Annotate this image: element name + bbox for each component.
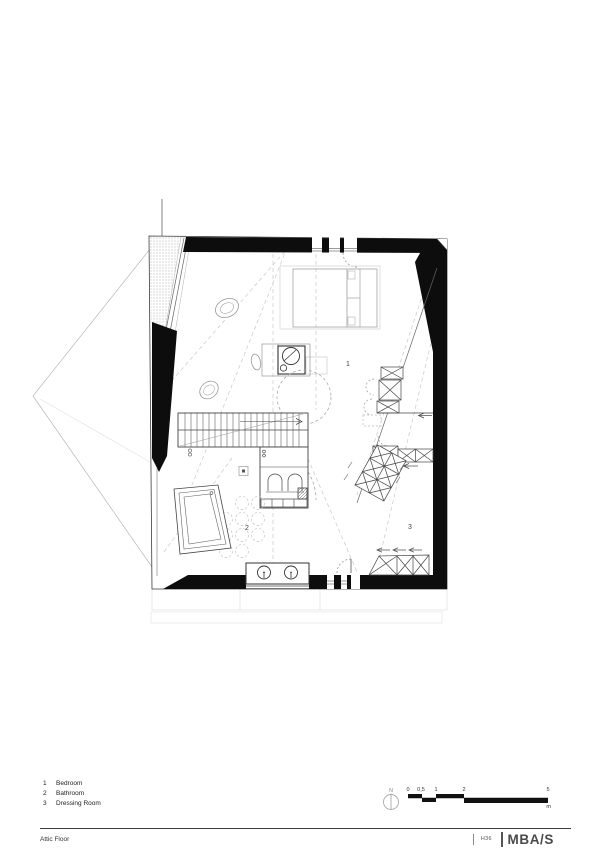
room-label-dressing: 3 [408,524,412,531]
scale-tick-1: 1 [434,787,437,793]
title-block-rule [40,828,571,829]
legend-num: 2 [43,789,56,799]
north-arrow: N [384,788,399,810]
room-label-bathroom: 2 [245,525,249,532]
scale-tick-0: 0 [406,787,409,793]
floor-plan-drawing: 1 2 3 N 0 0,5 1 2 5 m [0,0,611,864]
drawing-title: Attic Floor [40,836,69,843]
lower-floor-projection [151,589,447,623]
wc-bench-unit [260,447,308,508]
room-label-bedroom: 1 [346,361,350,368]
scale-tick-2: 2 [462,787,465,793]
legend-num: 3 [43,799,56,809]
room-legend: 1 Bedroom 2 Bathroom 3 Dressing Room [43,779,101,809]
terrace-door-opening [351,575,360,589]
divider-bar [473,834,474,845]
project-code: H36 [481,836,492,842]
vanity [246,563,309,589]
legend-label: Bedroom [56,779,82,789]
legend-item: 2 Bathroom [43,789,101,799]
scale-tick-5: 5 [546,787,549,793]
brand-block: H36 MBA/S [473,831,554,847]
divider-bar [501,832,503,847]
legend-label: Dressing Room [56,799,101,809]
legend-num: 1 [43,779,56,789]
scale-tick-05: 0,5 [417,787,425,793]
roof-gable-projection [33,249,152,567]
legend-item: 3 Dressing Room [43,799,101,809]
legend-item: 1 Bedroom [43,779,101,789]
scale-unit: m [546,804,551,810]
legend-label: Bathroom [56,789,84,799]
north-label: N [389,788,393,794]
staircase [178,413,308,447]
scale-bar: 0 0,5 1 2 5 m [406,787,551,810]
brand-logo: MBA/S [508,832,555,847]
